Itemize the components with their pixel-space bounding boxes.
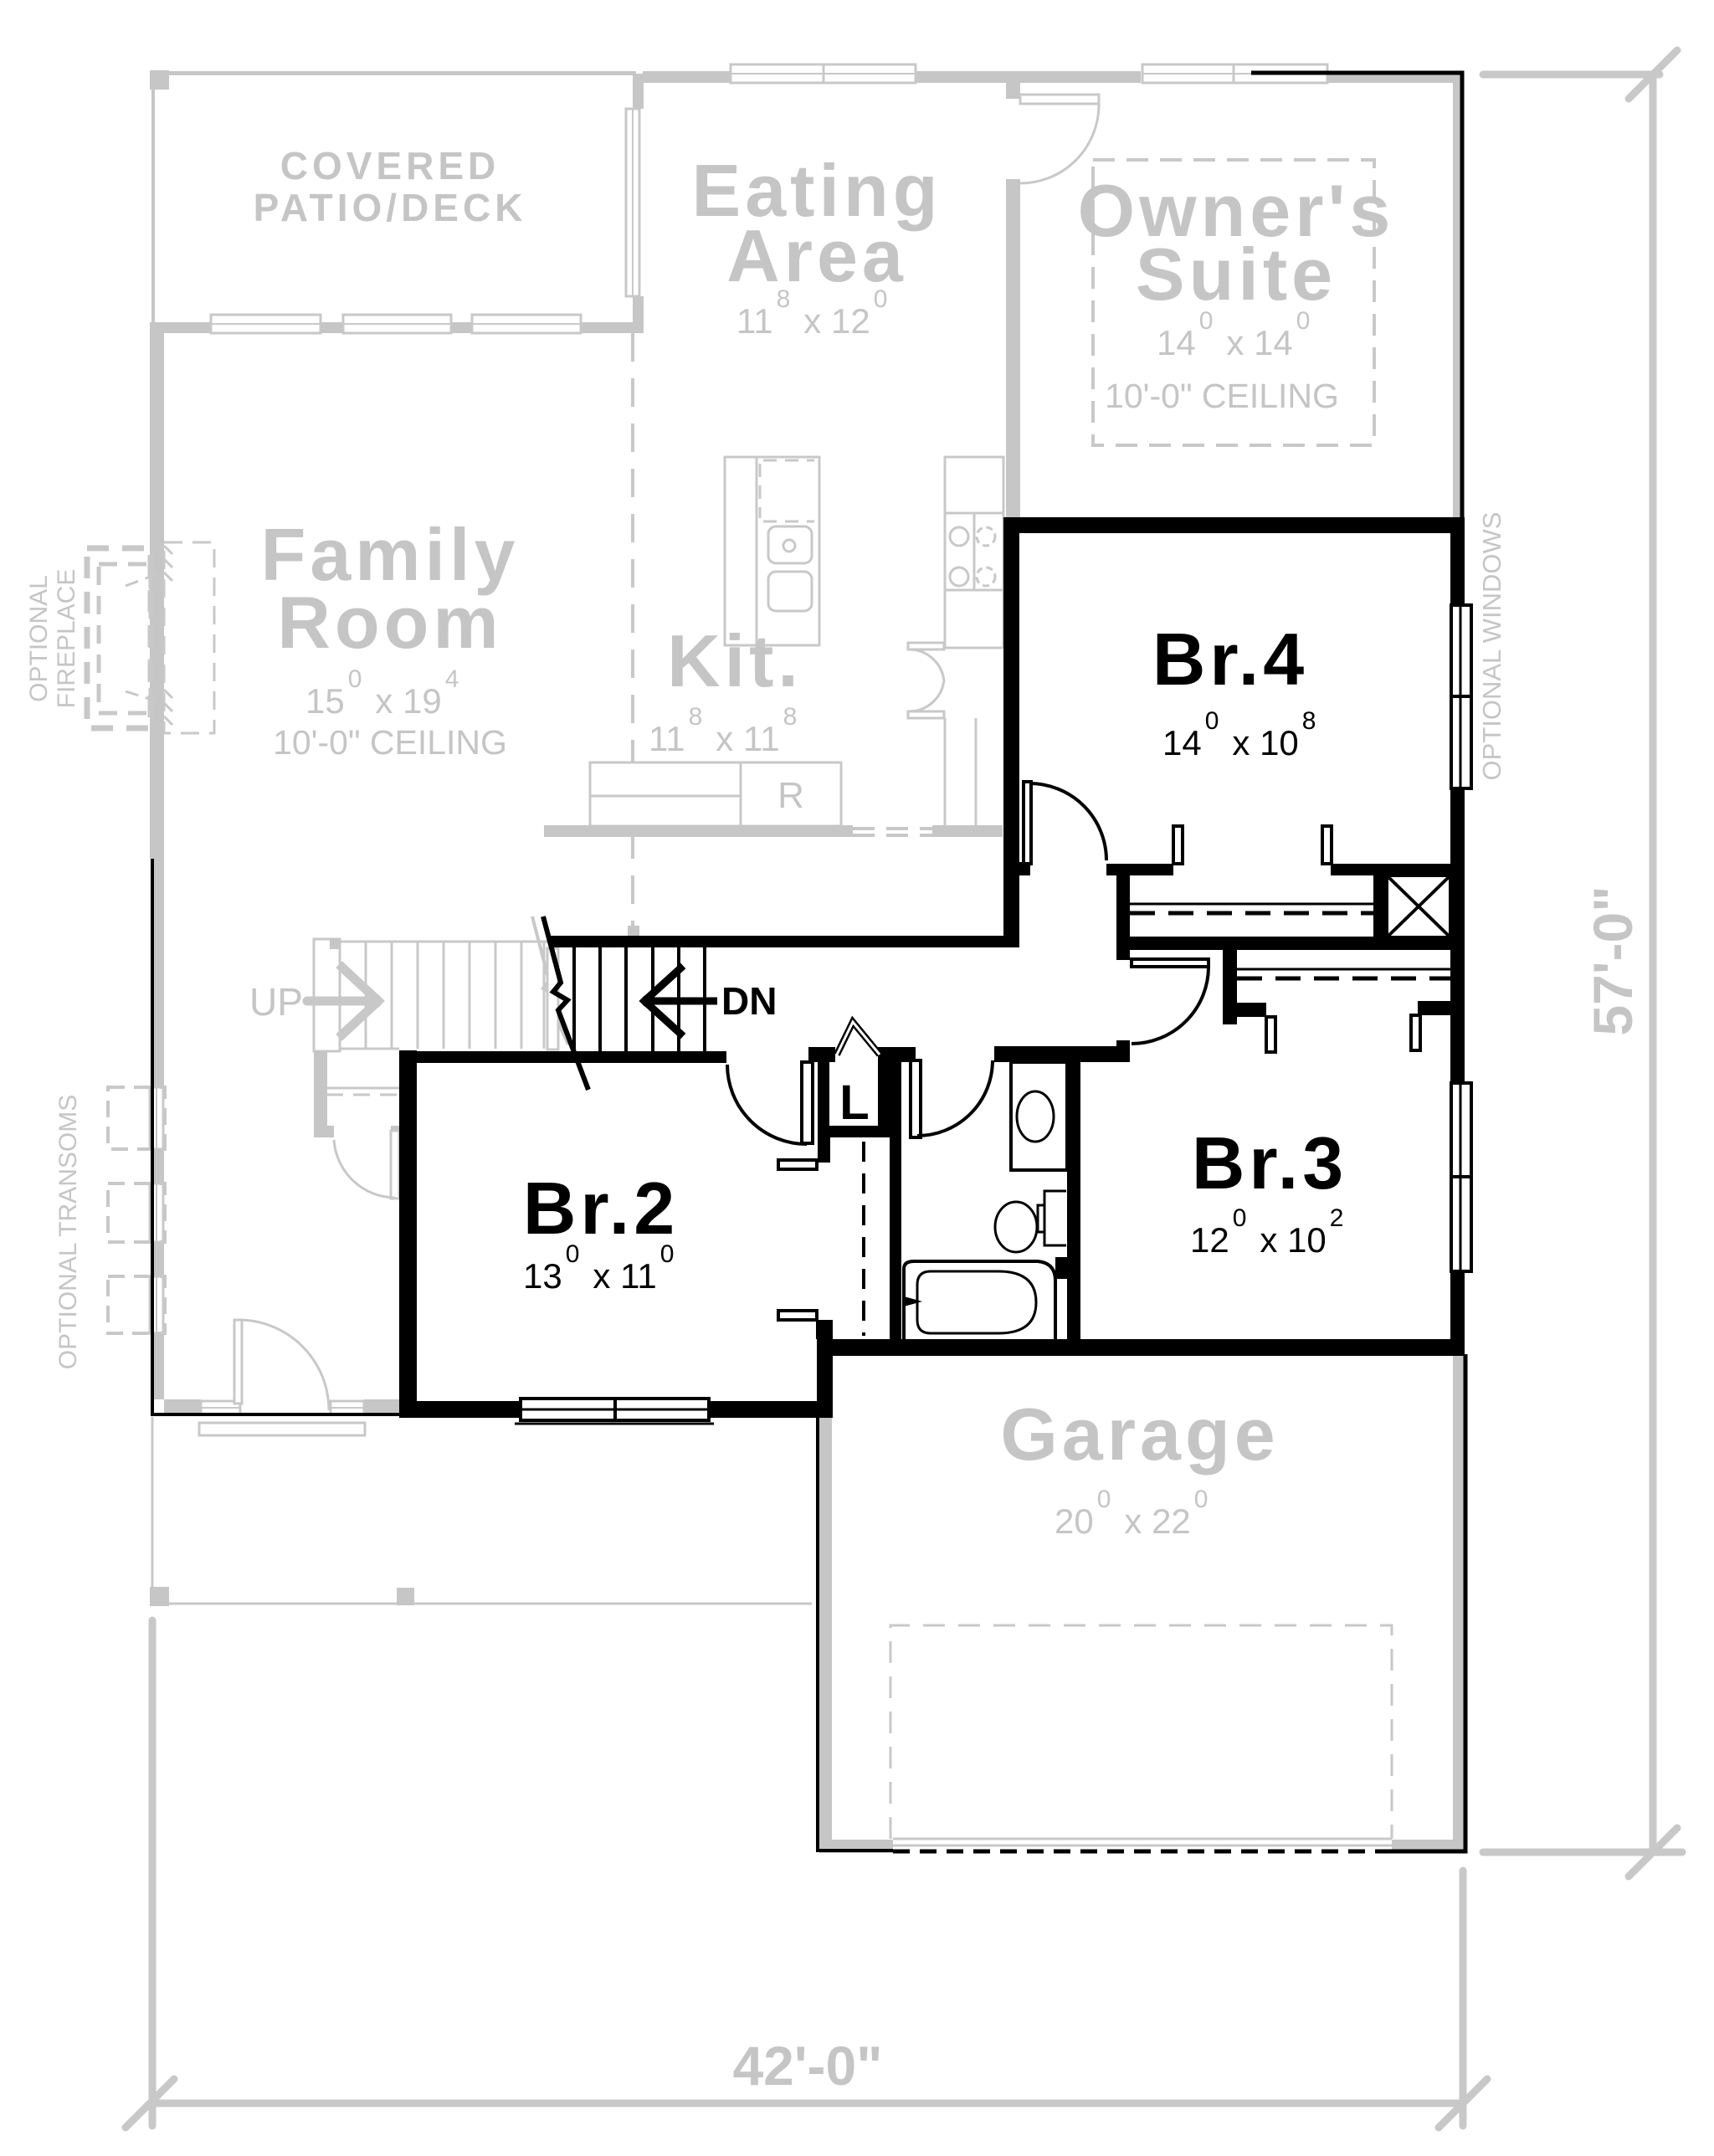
svg-text:Br.4: Br.4 xyxy=(1152,618,1308,701)
svg-text:OPTIONAL TRANSOMS: OPTIONAL TRANSOMS xyxy=(54,1095,82,1369)
svg-text:DN: DN xyxy=(721,979,777,1023)
svg-text:10'-0" CEILING: 10'-0" CEILING xyxy=(273,723,507,762)
svg-text:COVERED: COVERED xyxy=(280,144,500,187)
svg-text:Garage: Garage xyxy=(1000,1393,1279,1476)
svg-text:10'-0" CEILING: 10'-0" CEILING xyxy=(1105,377,1339,415)
svg-text:PATIO/DECK: PATIO/DECK xyxy=(254,186,527,229)
svg-text:Kit.: Kit. xyxy=(667,619,803,702)
svg-text:Room: Room xyxy=(277,581,502,664)
svg-text:OPTIONAL: OPTIONAL xyxy=(25,575,53,702)
svg-text:Br.2: Br.2 xyxy=(523,1167,679,1250)
svg-text:R: R xyxy=(777,775,804,816)
svg-text:Br.3: Br.3 xyxy=(1192,1122,1347,1204)
svg-text:Suite: Suite xyxy=(1136,233,1337,316)
svg-text:OPTIONAL WINDOWS: OPTIONAL WINDOWS xyxy=(1477,512,1506,781)
svg-text:57'-0": 57'-0" xyxy=(1582,885,1644,1035)
svg-text:42'-0": 42'-0" xyxy=(732,2035,882,2097)
svg-text:FIREPLACE: FIREPLACE xyxy=(53,569,80,709)
svg-text:UP: UP xyxy=(249,980,303,1024)
svg-text:L: L xyxy=(839,1075,869,1130)
